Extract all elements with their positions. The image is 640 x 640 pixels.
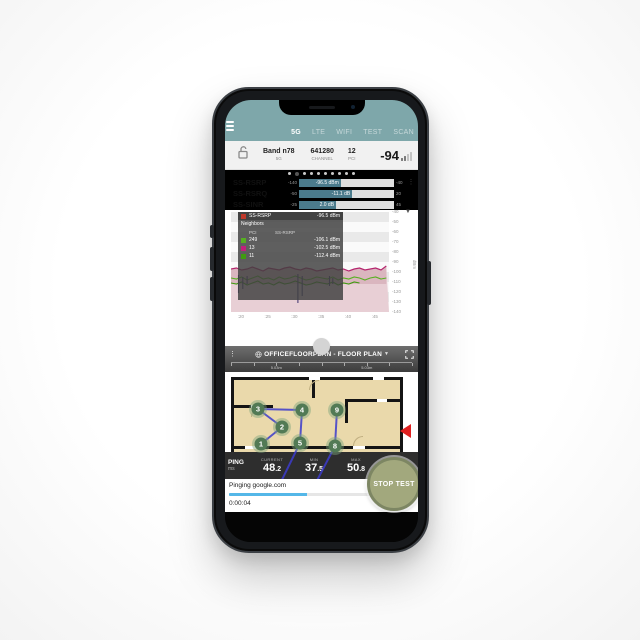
stop-test-label: STOP TEST — [373, 481, 414, 488]
divider-drag-handle[interactable] — [313, 338, 330, 355]
ping-stat-value: 50.8 — [347, 463, 365, 474]
neighbor-row: 13-102.5 dBm — [238, 244, 343, 252]
page-dot — [288, 172, 291, 175]
measurement-value: -11.1 dB — [332, 191, 353, 197]
serving-legend-label: SS-RSRP — [249, 213, 271, 219]
neighbors-col-pci: PCI — [249, 230, 275, 235]
page-dot — [324, 172, 327, 175]
volume-down-button — [210, 277, 214, 301]
page-dot — [295, 172, 299, 176]
measurement-bar: 2.0 dB — [299, 201, 394, 209]
band-value: Band n78 — [263, 148, 295, 156]
fullscreen-icon[interactable] — [405, 350, 414, 359]
neighbor-pci: 249 — [249, 237, 275, 243]
measurement-row: SS-RSRQ-50-11.1 dB20 — [225, 188, 418, 199]
measurement-row: SS-SINR-252.0 dB45 — [225, 199, 418, 210]
measurement-bar: -11.1 dB — [299, 190, 394, 198]
measurement-max: 45 — [394, 202, 407, 207]
measurement-menu-icon[interactable]: ⋮ — [407, 179, 415, 186]
scale-ruler: 5.03m5.03m — [231, 362, 412, 370]
neighbor-pci: 13 — [249, 245, 275, 251]
ping-stat-min: MIN37.5 — [293, 458, 335, 474]
measurement-row: SS-RSRP-140-96.5 dBm-40⋮ — [225, 177, 418, 188]
neighbor-swatch — [241, 246, 246, 251]
neighbor-row: 11-112.4 dBm — [238, 252, 343, 260]
serving-legend-value: -96.5 dBm — [317, 213, 340, 219]
scale-label: 5.03m — [271, 365, 282, 370]
measurement-label: SS-RSRP — [233, 178, 283, 187]
measurement-label: SS-SINR — [233, 200, 283, 209]
channel-value: 641280 — [311, 148, 334, 156]
floorplan-menu-icon[interactable]: ⋮ — [229, 350, 239, 358]
chart-y-tick: -50 — [392, 219, 408, 224]
floorplan-view[interactable] — [225, 372, 418, 452]
page-dot — [303, 172, 306, 175]
tab-5g[interactable]: 5G — [291, 129, 301, 136]
cell-info-bar: Band n78 5G 641280 CHANNEL 12 PCI -94 — [225, 141, 418, 170]
stop-test-button[interactable]: STOP TEST — [367, 457, 418, 511]
signal-chart[interactable]: ▼ dBm SS-RSRP -96.5 dBm Neighbors PCI SS… — [225, 210, 418, 332]
phone-screen: 5GLTEWIFITESTSCAN Band n78 5G 641280 CHA… — [225, 100, 418, 542]
chart-x-tick: :30 — [291, 314, 297, 319]
chart-legend: SS-RSRP -96.5 dBm Neighbors PCI SS-RSRP … — [238, 212, 343, 300]
page-dot — [352, 172, 355, 175]
chart-y-axis-label: dBm — [412, 260, 417, 269]
channel-label: CHANNEL — [311, 156, 333, 161]
page-dot — [310, 172, 313, 175]
signal-level-value: -94 — [380, 149, 399, 162]
page-dot — [338, 172, 341, 175]
volume-up-button — [210, 247, 214, 271]
measurement-max: -40 — [394, 180, 407, 185]
neighbor-swatch — [241, 238, 246, 243]
unlock-icon[interactable] — [238, 146, 249, 164]
neighbor-pci: 11 — [249, 253, 275, 259]
tab-lte[interactable]: LTE — [312, 129, 325, 136]
page-indicator[interactable] — [225, 170, 418, 177]
chart-x-tick: :45 — [372, 314, 378, 319]
neighbors-title: Neighbors — [238, 220, 343, 228]
page-dot — [317, 172, 320, 175]
measurement-value: 2.0 dB — [320, 202, 336, 208]
neighbor-value: -112.4 dBm — [315, 253, 340, 259]
ping-stat-label: MIN — [310, 458, 319, 462]
signal-bars-icon — [401, 152, 412, 162]
chart-x-tick: :40 — [345, 314, 351, 319]
pci-label: PCI — [348, 156, 356, 161]
chart-y-tick: -120 — [392, 289, 408, 294]
chart-y-tick: -110 — [392, 279, 408, 284]
neighbor-row: 249-106.1 dBm — [238, 236, 343, 244]
chart-y-tick: -40 — [392, 209, 408, 214]
floorplan-dropdown-icon: ▼ — [384, 351, 389, 357]
ping-stat-label: MAX — [351, 458, 361, 462]
chart-y-tick: -140 — [392, 309, 408, 314]
power-button — [427, 261, 431, 305]
serving-legend-swatch — [241, 214, 246, 219]
map-icon — [255, 351, 262, 358]
measurement-bar: -96.5 dBm — [299, 179, 394, 187]
ping-stat-value: 37.5 — [305, 463, 323, 474]
band-label: 5G — [276, 156, 282, 161]
neighbor-value: -106.1 dBm — [314, 237, 340, 243]
measurement-min: -50 — [283, 191, 299, 196]
front-camera — [351, 105, 355, 109]
ping-title: PING — [228, 459, 251, 467]
page-dot — [331, 172, 334, 175]
chart-x-tick: :35 — [318, 314, 324, 319]
neighbor-value: -102.5 dBm — [314, 245, 340, 251]
tab-scan[interactable]: SCAN — [393, 129, 414, 136]
measurement-max: 20 — [394, 191, 407, 196]
chart-y-tick: -70 — [392, 239, 408, 244]
chart-x-tick: :20 — [238, 314, 244, 319]
measurement-label: SS-RSRQ — [233, 189, 283, 198]
scale-label: 5.03m — [361, 365, 372, 370]
mute-switch — [210, 225, 214, 238]
tab-bar: 5GLTEWIFITESTSCAN — [291, 129, 414, 136]
screen-bottom — [225, 512, 418, 542]
menu-icon[interactable] — [226, 121, 234, 133]
chart-y-tick: -60 — [392, 229, 408, 234]
tab-wifi[interactable]: WIFI — [336, 129, 352, 136]
page-dot — [345, 172, 348, 175]
speaker-grille — [309, 106, 335, 109]
ping-unit: ms — [228, 466, 251, 472]
chart-y-tick: -130 — [392, 299, 408, 304]
neighbor-swatch — [241, 254, 246, 259]
measurement-min: -25 — [283, 202, 299, 207]
neighbors-col-rsrp: SS-RSRP — [275, 230, 295, 235]
chart-y-tick: -100 — [392, 269, 408, 274]
phone-notch — [279, 100, 365, 115]
ping-stat-value: 48.2 — [263, 463, 281, 474]
measurement-value: -96.5 dBm — [316, 180, 341, 186]
pci-value: 12 — [348, 148, 356, 156]
phone-mockup: 5GLTEWIFITESTSCAN Band n78 5G 641280 CHA… — [212, 87, 429, 553]
chart-x-tick: :25 — [264, 314, 270, 319]
measurement-list: SS-RSRP-140-96.5 dBm-40⋮SS-RSRQ-50-11.1 … — [225, 177, 418, 210]
chart-y-tick: -90 — [392, 259, 408, 264]
chart-y-tick: -80 — [392, 249, 408, 254]
ping-stat-current: CURRENT48.2 — [251, 458, 293, 474]
measurement-min: -140 — [283, 180, 299, 185]
tab-test[interactable]: TEST — [363, 129, 382, 136]
ping-stat-label: CURRENT — [261, 458, 283, 462]
